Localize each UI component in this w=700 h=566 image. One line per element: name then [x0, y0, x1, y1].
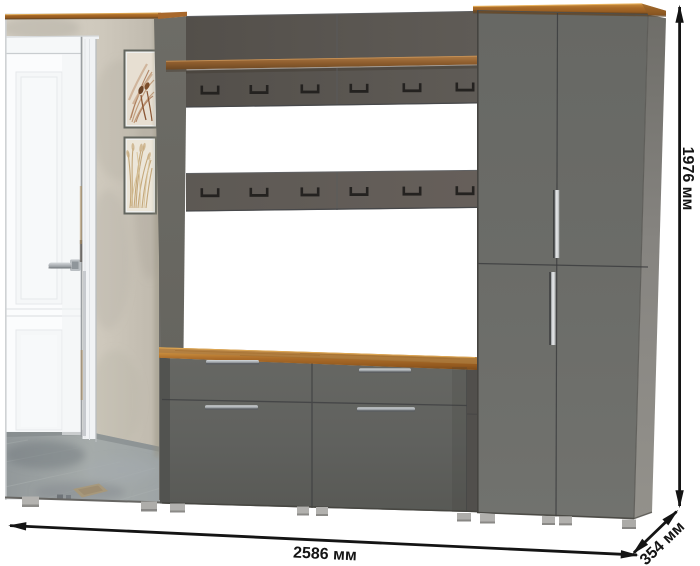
svg-text:1976 мм: 1976 мм	[679, 147, 696, 211]
svg-text:2586 мм: 2586 мм	[293, 545, 357, 565]
